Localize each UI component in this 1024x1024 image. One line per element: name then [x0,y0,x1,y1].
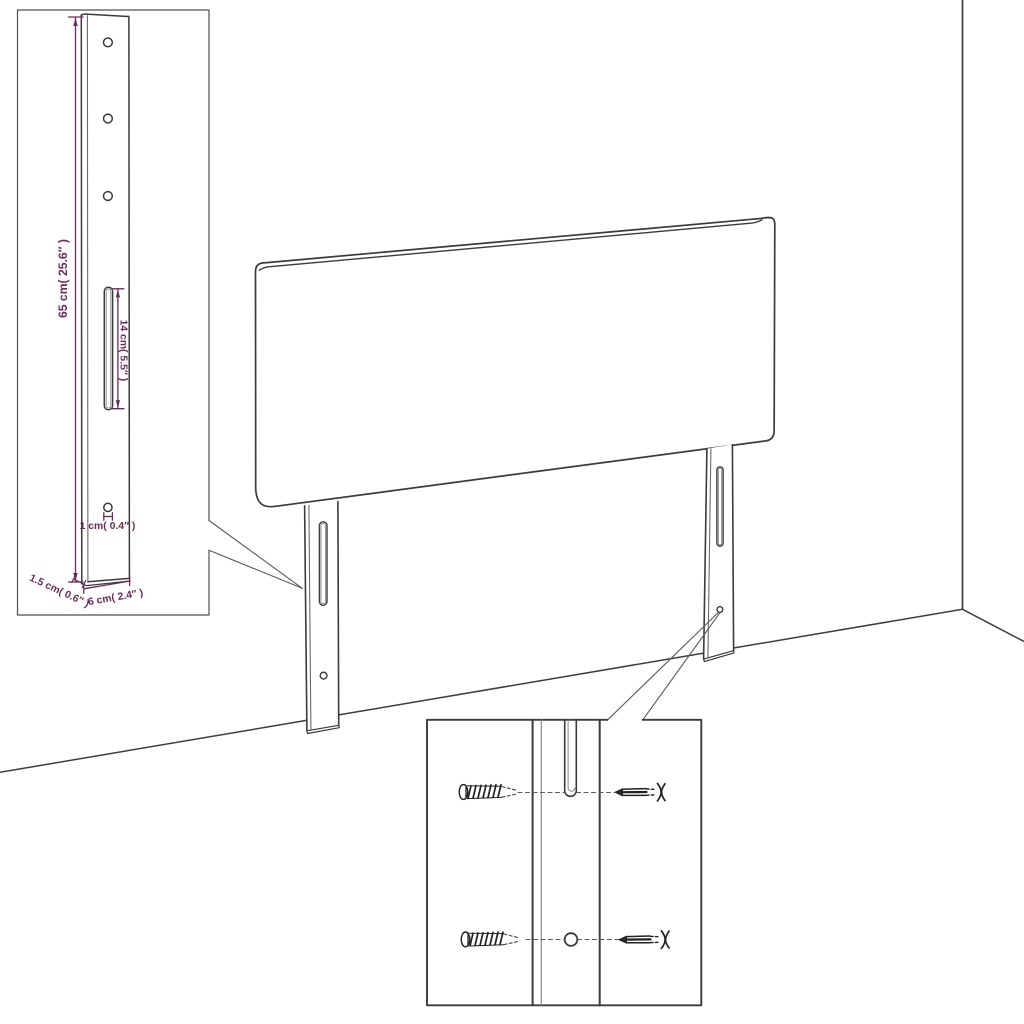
svg-text:1 cm( 0.4″ ): 1 cm( 0.4″ ) [80,521,136,532]
svg-text:6 cm( 2.4″ ): 6 cm( 2.4″ ) [87,588,144,609]
svg-text:14 cm( 5.5″ ): 14 cm( 5.5″ ) [118,320,129,382]
svg-text:65 cm( 25.6″ ): 65 cm( 25.6″ ) [56,239,70,318]
